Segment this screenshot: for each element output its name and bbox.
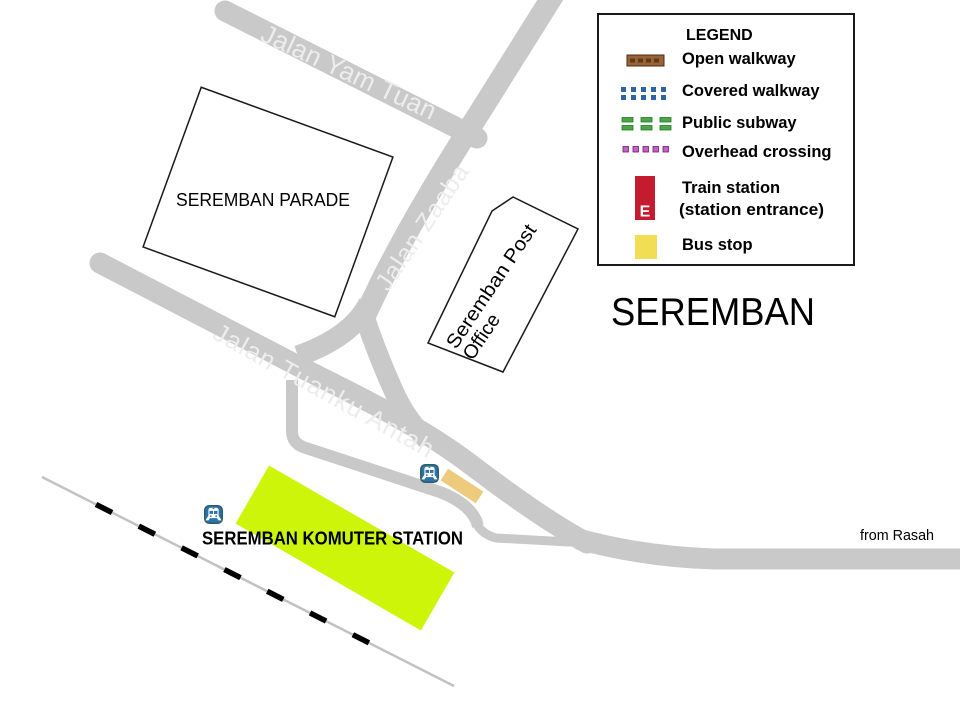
svg-text:Bus stop: Bus stop bbox=[682, 236, 753, 254]
svg-text:SEREMBAN: SEREMBAN bbox=[611, 291, 815, 334]
svg-text:from Rasah: from Rasah bbox=[860, 528, 934, 544]
svg-text:SEREMBAN KOMUTER STATION: SEREMBAN KOMUTER STATION bbox=[202, 529, 463, 549]
svg-text:Overhead crossing: Overhead crossing bbox=[682, 143, 831, 161]
svg-text:LEGEND: LEGEND bbox=[686, 27, 753, 44]
svg-text:Open walkway: Open walkway bbox=[682, 50, 797, 68]
svg-text:Public subway: Public subway bbox=[682, 114, 797, 132]
svg-text:SEREMBAN PARADE: SEREMBAN PARADE bbox=[176, 190, 350, 210]
svg-text:Train station: Train station bbox=[682, 179, 780, 197]
svg-text:(station entrance): (station entrance) bbox=[679, 201, 824, 219]
svg-text:E: E bbox=[640, 204, 651, 221]
svg-text:Covered walkway: Covered walkway bbox=[682, 82, 820, 100]
